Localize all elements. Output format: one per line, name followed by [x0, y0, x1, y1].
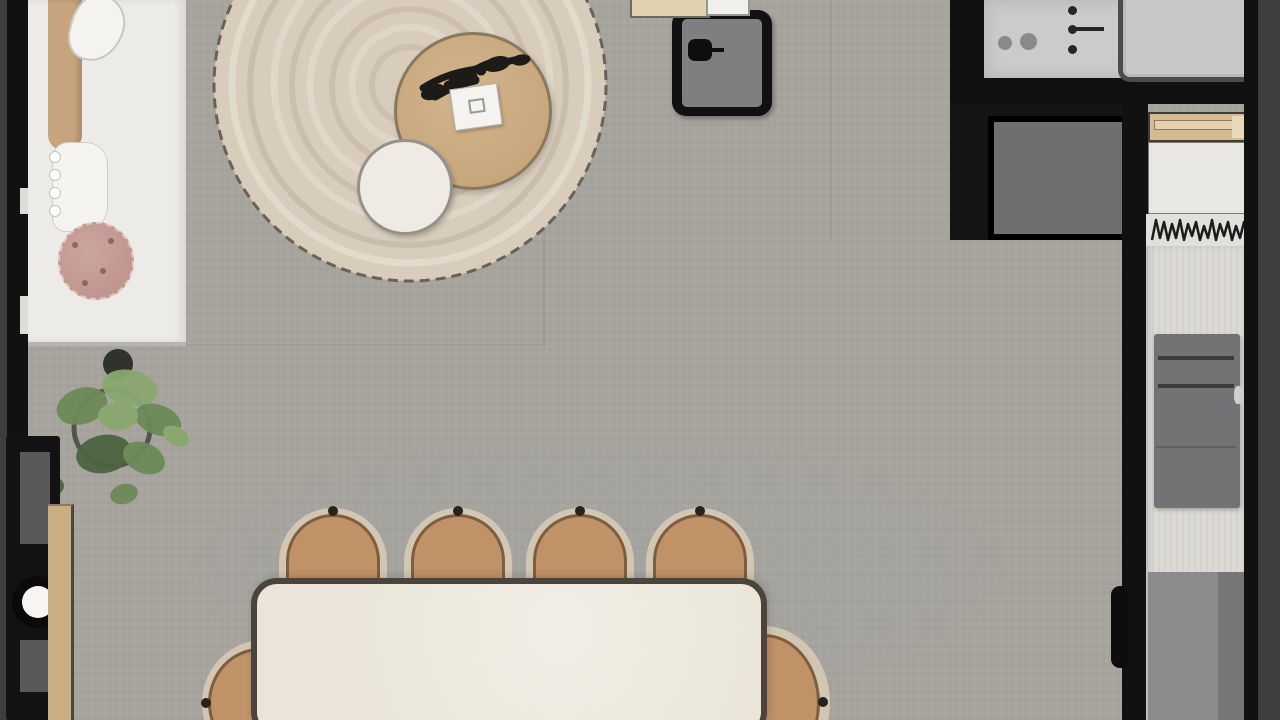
wall-notch: [20, 188, 28, 214]
speckle: [108, 238, 114, 244]
cooktop-line: [1158, 384, 1234, 388]
ruffle-dot: [49, 169, 61, 181]
cooktop-line: [1158, 356, 1234, 360]
stove-panel: [20, 640, 50, 692]
washbasin-drain: [998, 36, 1012, 50]
book-mark: [468, 98, 486, 114]
chair-knob: [201, 698, 211, 708]
chair-knob: [575, 506, 585, 516]
kitchen-wood-shelf: [1148, 112, 1252, 142]
speckle: [72, 242, 78, 248]
washbasin-drain: [1020, 33, 1037, 50]
wall-notch: [20, 296, 28, 334]
kitchen-white-cabinet: [1148, 142, 1252, 214]
potted-plant: [48, 336, 198, 521]
bathroom: [950, 0, 1256, 104]
floor-seam: [830, 0, 832, 240]
washing-machine: [988, 116, 1136, 240]
white-ruffled-object: [52, 142, 108, 232]
utility-room: [950, 104, 1136, 240]
shelf-highlight: [1154, 120, 1238, 130]
wood-floor-strip: [48, 504, 74, 720]
door-handle: [1111, 586, 1127, 668]
faucet-dot: [1068, 6, 1077, 15]
white-book: [449, 83, 502, 131]
top-wall-shelf-white: [706, 0, 750, 16]
cooktop-divider: [1156, 446, 1236, 448]
radiator: [1146, 214, 1254, 246]
cabinet-handle-stub: [712, 48, 724, 52]
chair-knob: [328, 506, 338, 516]
cooktop-handle: [1234, 386, 1243, 404]
faucet-dot: [1068, 45, 1077, 54]
ruffle-dot: [49, 205, 61, 217]
stove-panel: [20, 452, 50, 544]
lower-appliance: [1148, 572, 1244, 720]
ruffle-dot: [49, 151, 61, 163]
ruffle-dot: [49, 187, 61, 199]
floor-plan: [0, 0, 1280, 720]
speckle: [100, 268, 106, 274]
chair-knob: [818, 697, 828, 707]
chair-knob: [695, 506, 705, 516]
round-side-table: [357, 139, 453, 235]
cooktop-unit: [1154, 334, 1240, 508]
pink-pouf: [58, 222, 134, 300]
outer-edge-right: [1258, 0, 1280, 720]
cabinet-handle: [688, 39, 712, 61]
floor-seam: [186, 344, 546, 346]
cabinet-inner: [682, 19, 762, 107]
top-wall-shelf: [630, 0, 710, 18]
speckle: [82, 280, 88, 286]
bathroom-floor: [984, 0, 1246, 78]
faucet-spout: [1072, 27, 1104, 31]
lower-appliance-edge: [1218, 572, 1244, 720]
chair-knob: [453, 506, 463, 516]
kitchen-counter: [1146, 246, 1254, 720]
right-wall: [1244, 0, 1258, 720]
gray-cabinet-square: [672, 10, 772, 116]
dining-table: [251, 578, 767, 720]
